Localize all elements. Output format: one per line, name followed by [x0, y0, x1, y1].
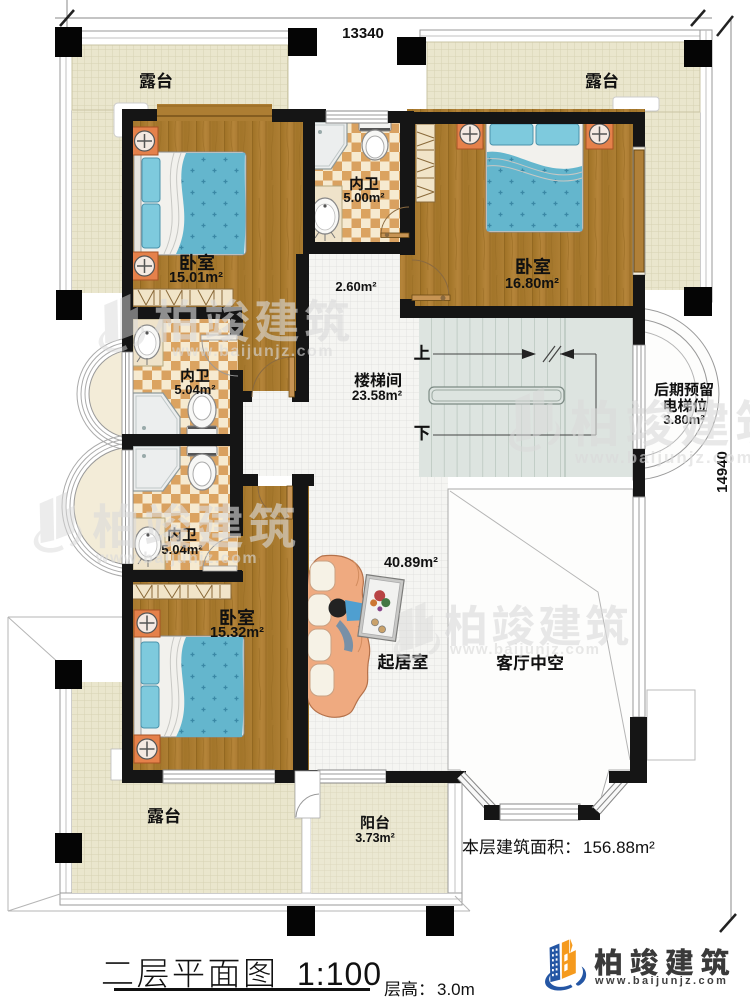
svg-text:www.baijunjz.com: www.baijunjz.com	[594, 975, 728, 987]
svg-text:5.04m²: 5.04m²	[174, 382, 216, 397]
svg-text:3.73m²: 3.73m²	[355, 831, 395, 845]
svg-text:23.58m²: 23.58m²	[352, 388, 403, 403]
svg-text:1:100: 1:100	[297, 956, 382, 992]
svg-text:40.89m²: 40.89m²	[384, 555, 438, 571]
svg-text:13340: 13340	[342, 25, 384, 42]
svg-text:2.60m²: 2.60m²	[335, 279, 377, 294]
svg-text:www.baijunjz.com: www.baijunjz.com	[449, 641, 600, 658]
svg-text:15.01m²: 15.01m²	[169, 270, 223, 286]
svg-text:15.32m²: 15.32m²	[210, 625, 264, 641]
svg-text:www.baijunjz.com: www.baijunjz.com	[95, 550, 258, 567]
svg-text:3.0m: 3.0m	[437, 980, 475, 999]
svg-text:www.baijunjz.com: www.baijunjz.com	[171, 343, 334, 360]
svg-text:16.80m²: 16.80m²	[505, 276, 559, 292]
svg-text:5.00m²: 5.00m²	[343, 190, 385, 205]
svg-text:156.88m²: 156.88m²	[583, 838, 655, 857]
svg-text:www.baijunjz.com: www.baijunjz.com	[574, 448, 750, 467]
